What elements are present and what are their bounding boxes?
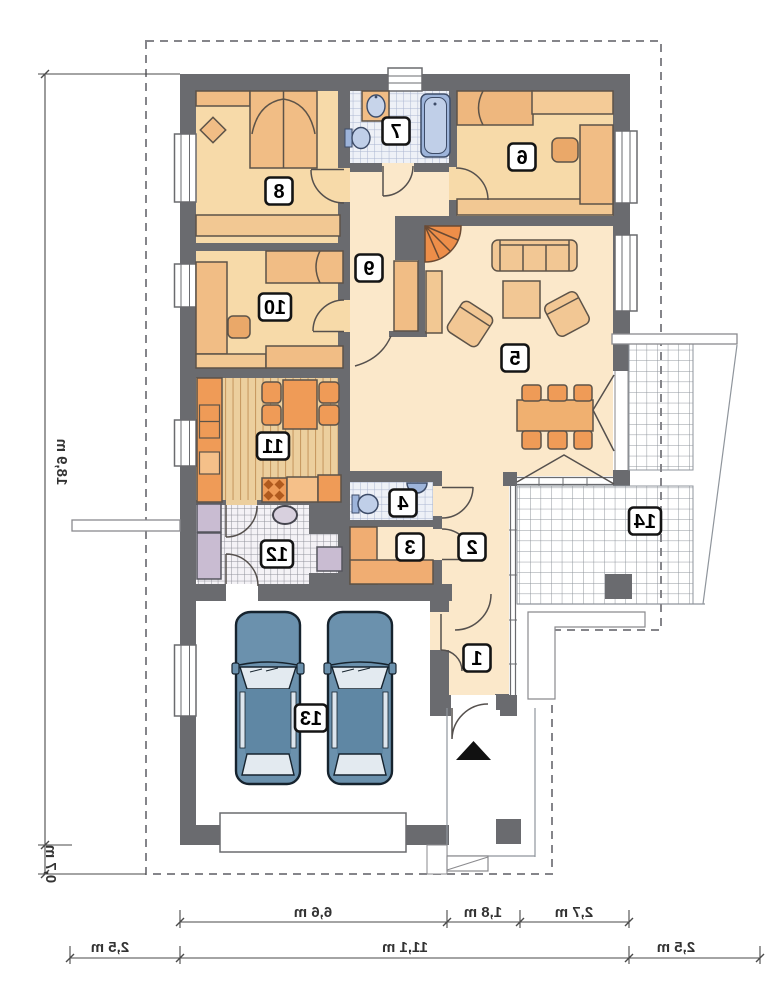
svg-text:7: 7	[390, 121, 401, 143]
svg-text:2: 2	[466, 537, 477, 559]
svg-text:0,7 m: 0,7 m	[42, 845, 59, 883]
svg-text:2,7 m: 2,7 m	[555, 904, 593, 921]
svg-text:11: 11	[262, 436, 283, 458]
svg-text:2,5 m: 2,5 m	[657, 939, 695, 956]
svg-text:5: 5	[509, 348, 520, 370]
svg-text:10: 10	[264, 297, 286, 319]
svg-text:1: 1	[471, 648, 482, 670]
svg-text:6,6 m: 6,6 m	[294, 904, 332, 921]
svg-text:13: 13	[300, 708, 322, 730]
svg-text:6: 6	[516, 147, 527, 169]
svg-text:12: 12	[266, 544, 288, 566]
svg-text:14: 14	[633, 511, 656, 533]
svg-text:9: 9	[363, 258, 374, 280]
svg-text:1,8 m: 1,8 m	[464, 904, 502, 921]
svg-text:11,1 m: 11,1 m	[382, 939, 428, 956]
svg-text:18,9 m: 18,9 m	[53, 439, 70, 486]
svg-text:2,5 m: 2,5 m	[91, 939, 129, 956]
svg-text:4: 4	[397, 493, 409, 515]
svg-text:8: 8	[273, 181, 284, 203]
svg-text:3: 3	[404, 537, 415, 559]
